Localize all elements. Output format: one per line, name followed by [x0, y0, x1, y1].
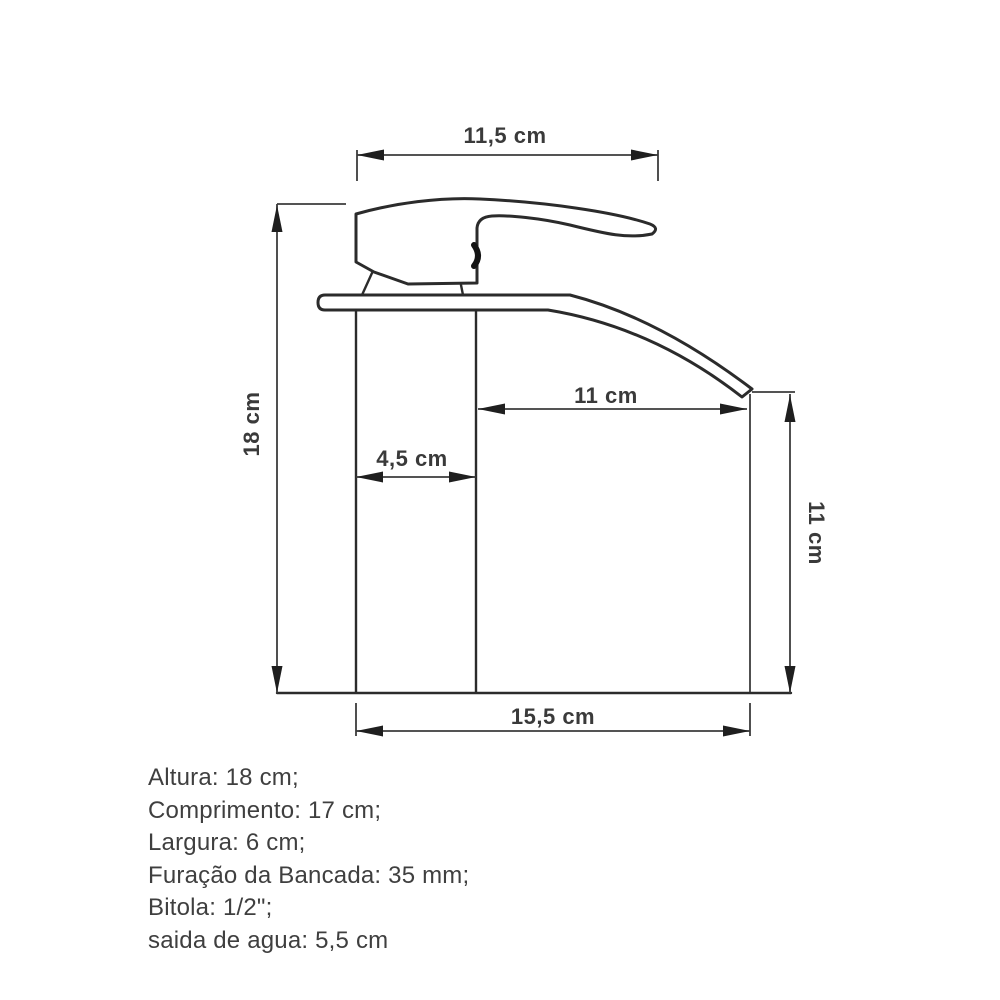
dim-label-spout-reach: 11 cm	[574, 383, 638, 409]
spec-line: saida de agua: 5,5 cm	[148, 925, 469, 958]
spec-line: Bitola: 1/2";	[148, 892, 469, 925]
faucet-spec-sheet: 11,5 cm 18 cm 4,5 cm 11 cm 11 cm 15,5 cm…	[0, 0, 1000, 1000]
arrow-right-icon	[631, 150, 658, 161]
neck-connector-left	[362, 273, 372, 295]
spec-line: Furação da Bancada: 35 mm;	[148, 860, 469, 893]
spec-line: Altura: 18 cm;	[148, 762, 469, 795]
arrow-down-icon	[272, 666, 283, 693]
dim-spout-height	[752, 392, 796, 693]
arrow-left-icon	[357, 150, 384, 161]
dim-top-width	[357, 150, 658, 182]
arrow-up-icon	[272, 205, 283, 232]
plate-and-spout	[318, 295, 752, 397]
dim-label-spout-height: 11 cm	[803, 501, 829, 565]
dim-total-height	[272, 204, 347, 693]
spec-block: Altura: 18 cm; Comprimento: 17 cm; Largu…	[148, 762, 469, 957]
spec-line: Largura: 6 cm;	[148, 827, 469, 860]
dim-label-top-width: 11,5 cm	[463, 123, 546, 149]
dim-label-total-height: 18 cm	[239, 392, 265, 457]
arrow-right-icon	[720, 404, 747, 415]
arrow-right-icon	[723, 726, 750, 737]
arrow-left-icon	[478, 404, 505, 415]
dim-label-base-length: 15,5 cm	[511, 704, 595, 730]
arrow-left-icon	[356, 726, 383, 737]
arrow-down-icon	[785, 666, 796, 693]
arrow-right-icon	[449, 472, 476, 483]
faucet-figure	[277, 199, 791, 693]
spec-line: Comprimento: 17 cm;	[148, 795, 469, 828]
arrow-left-icon	[356, 472, 383, 483]
faucet-body-and-handle	[356, 199, 656, 284]
dim-label-body-width: 4,5 cm	[376, 446, 448, 472]
dim-body-width	[356, 472, 476, 483]
arrow-up-icon	[785, 395, 796, 422]
